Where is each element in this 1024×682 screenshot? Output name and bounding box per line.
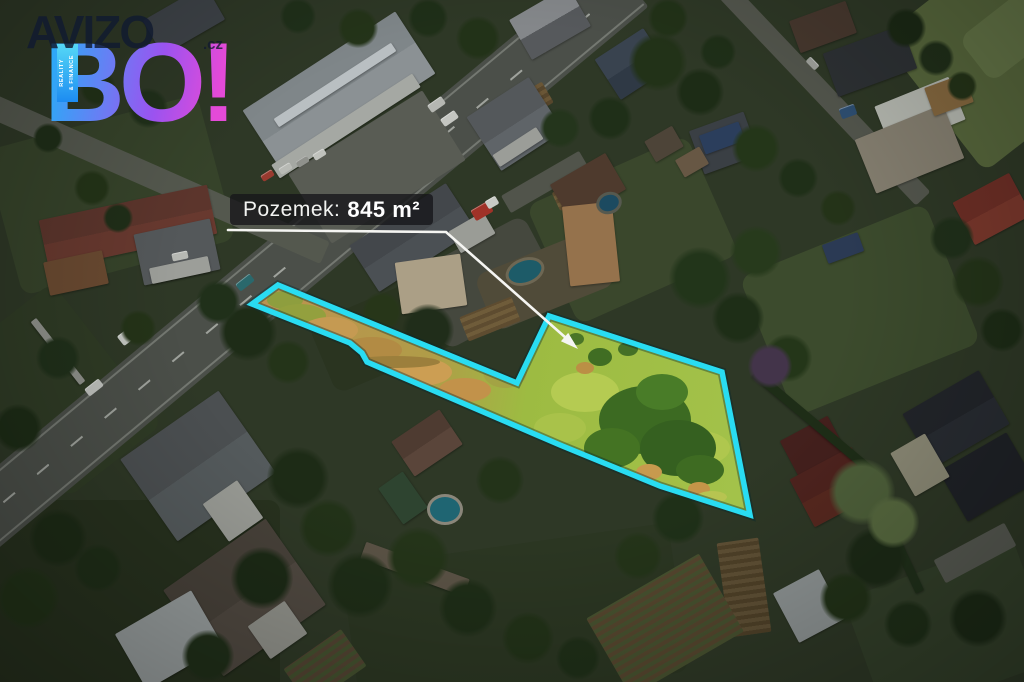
plot-vegetation-blob	[588, 348, 612, 366]
area-label: Pozemek: 845 m²	[230, 194, 433, 225]
ribbon-text-reality: REALITY	[58, 59, 67, 87]
aerial-photo-stage: Pozemek: 845 m² BO! REALITY & FINANCE AV…	[0, 0, 1024, 682]
logo: BO! REALITY & FINANCE AVIZO .cz	[0, 0, 260, 150]
ribbon-text-finance: & FINANCE	[68, 55, 77, 90]
area-label-value: 845 m²	[347, 197, 420, 223]
plot-vegetation-blob	[636, 374, 688, 410]
logo-suffix-cz: .cz	[203, 36, 223, 53]
plot-vegetation-blob	[676, 455, 724, 485]
area-label-prefix: Pozemek:	[243, 198, 340, 222]
logo-wordmark-avizo: AVIZO	[26, 9, 153, 55]
plot-vegetation-blob	[576, 362, 594, 374]
